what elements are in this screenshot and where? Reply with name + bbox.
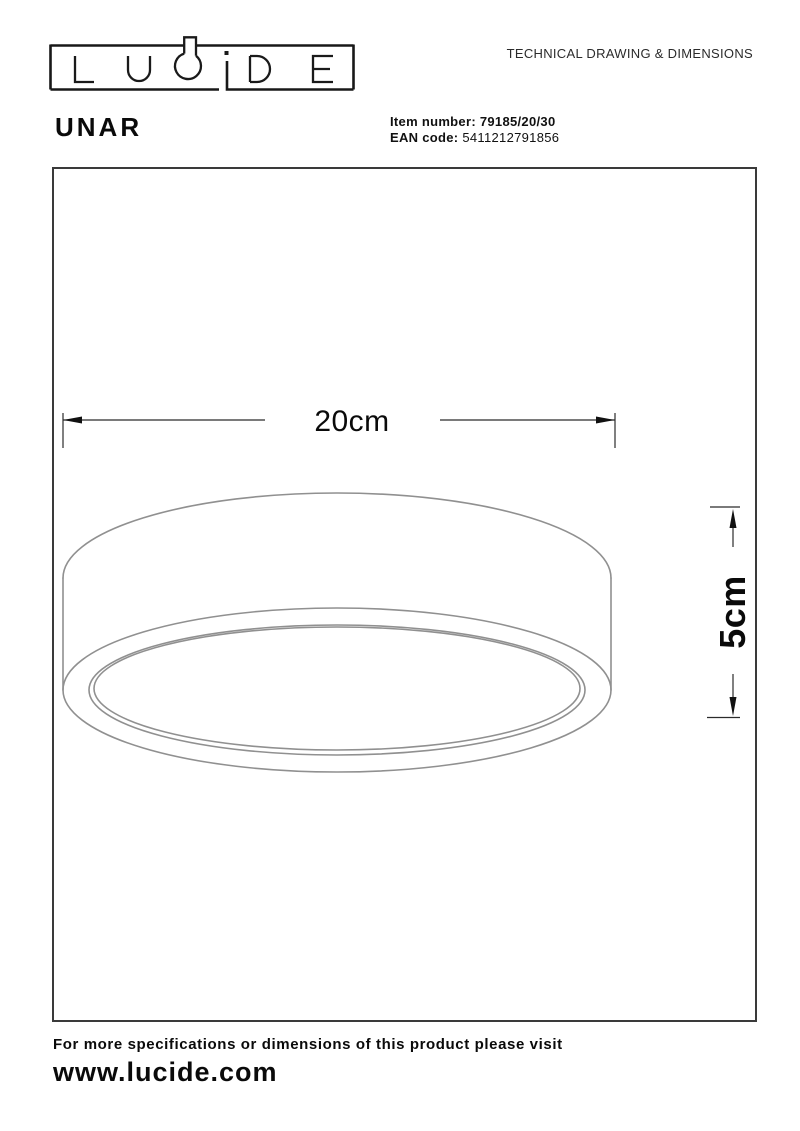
- footer-website: www.lucide.com: [53, 1057, 278, 1088]
- lamp-top-arc: [63, 493, 611, 578]
- technical-drawing: 20cm 5cm: [54, 169, 755, 1020]
- item-number-row: Item number: 79185/20/30: [390, 114, 559, 130]
- logo-c-chimney: [184, 37, 196, 56]
- width-dim-label: 20cm: [314, 405, 389, 438]
- technical-drawing-frame: 20cm 5cm: [52, 167, 757, 1022]
- page-title: TECHNICAL DRAWING & DIMENSIONS: [507, 46, 753, 61]
- logo-letter-l: [75, 56, 94, 82]
- ean-code-label: EAN code:: [390, 130, 458, 145]
- width-dimension: 20cm: [63, 405, 615, 448]
- logo-letter-e: [313, 56, 333, 82]
- height-dim-label: 5cm: [712, 575, 753, 649]
- logo-letter-u: [128, 56, 150, 81]
- width-dim-arrow-left: [63, 417, 82, 424]
- lamp-outline: [63, 493, 611, 772]
- height-dimension: 5cm: [707, 507, 753, 718]
- logo-letter-i-dot: [225, 51, 229, 55]
- lucide-logo: [48, 30, 358, 98]
- width-dim-arrow-right: [596, 417, 615, 424]
- lamp-diffuser-edge: [94, 627, 580, 750]
- product-codes: Item number: 79185/20/30 EAN code: 54112…: [390, 114, 559, 145]
- footer-note: For more specifications or dimensions of…: [53, 1036, 563, 1053]
- lamp-bottom-rim-inner: [89, 625, 585, 755]
- height-dim-arrow-down: [730, 697, 737, 716]
- logo-letter-i-stem: [227, 61, 354, 90]
- logo-letter-d: [250, 56, 270, 82]
- ean-code-value: 5411212791856: [462, 130, 559, 145]
- lamp-bottom-rim-outer: [63, 608, 611, 772]
- logo-letter-c: [175, 54, 201, 79]
- ean-code-row: EAN code: 5411212791856: [390, 130, 559, 146]
- item-number-value: 79185/20/30: [480, 114, 556, 129]
- height-dim-arrow-up: [730, 509, 737, 528]
- item-number-label: Item number:: [390, 114, 476, 129]
- product-name: UNAR: [55, 112, 142, 143]
- lucide-logo-art: [48, 30, 358, 98]
